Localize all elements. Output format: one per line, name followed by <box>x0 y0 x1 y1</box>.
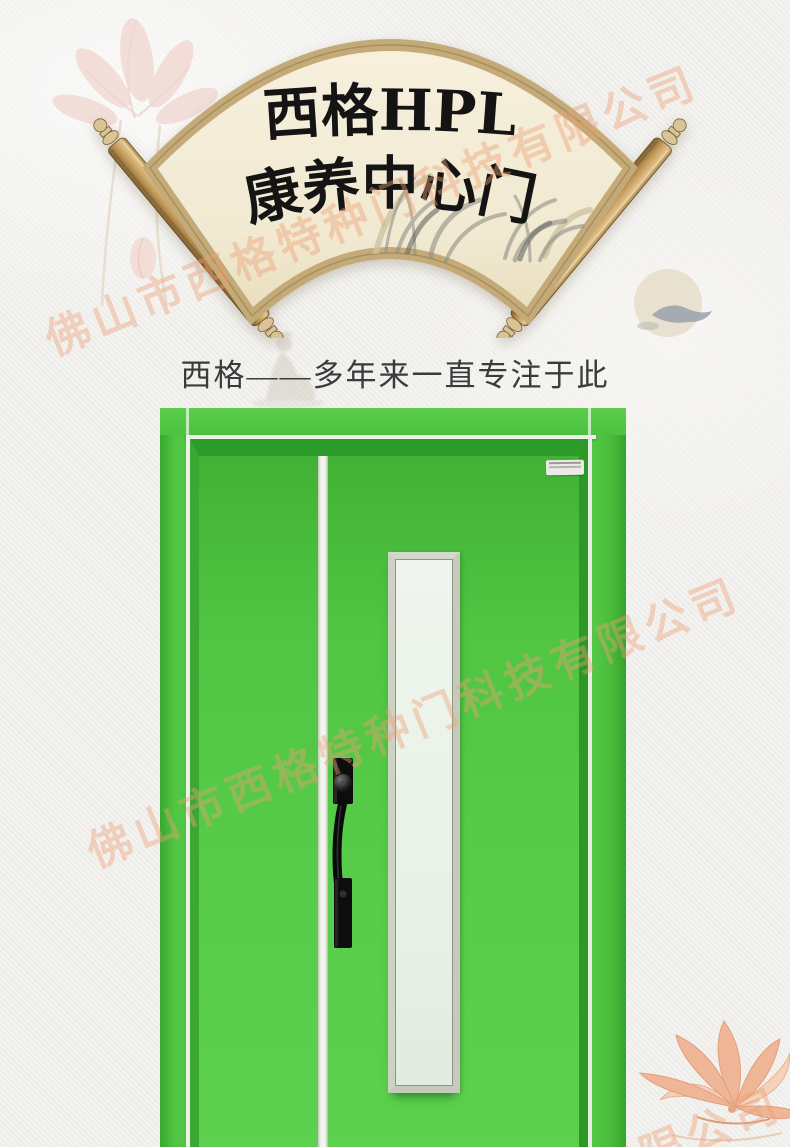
door-handle-icon <box>330 758 356 950</box>
tagline-text: 西格——多年来一直专注于此 <box>0 350 790 395</box>
door-frame-joint-right <box>588 408 591 435</box>
banner-title-line1: 西格HPL <box>261 77 519 150</box>
lotus-bottom-right-decoration <box>612 995 790 1147</box>
scroll-banner: 西格HPL 康养中心门 <box>85 18 697 338</box>
door-leaf-divider <box>318 456 328 1147</box>
door-frame-joint-left <box>186 408 189 435</box>
promo-page: 西格HPL 康养中心门 西格——多年来一直专注于此 <box>0 0 790 1147</box>
door-glass-panel <box>388 552 460 1093</box>
door-frame-left <box>160 435 186 1147</box>
door-product-image <box>160 408 626 1147</box>
door-brand-sticker <box>546 460 584 476</box>
door-frame-trim-right <box>588 435 592 1147</box>
door-frame-top <box>160 408 626 435</box>
